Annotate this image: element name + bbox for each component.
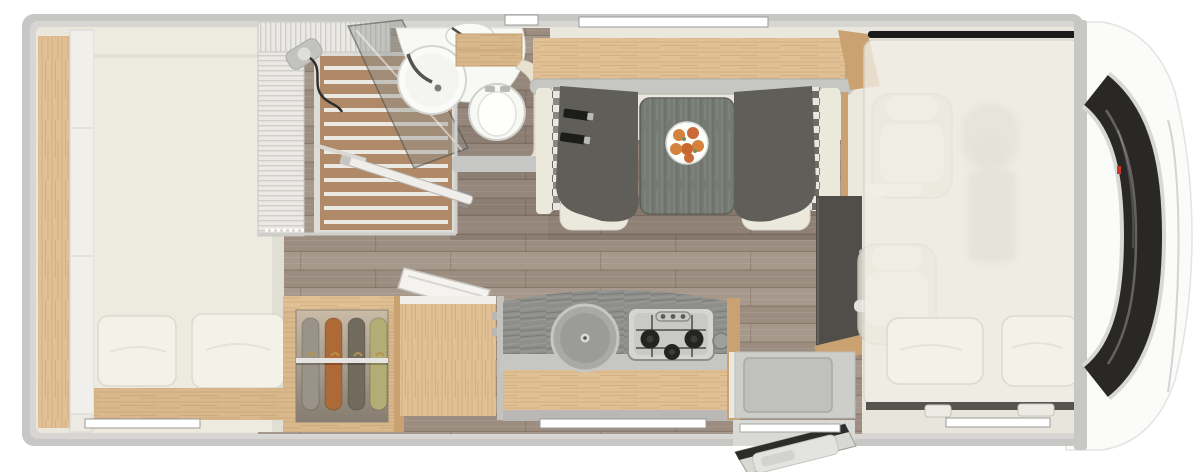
window-top-main bbox=[579, 17, 768, 27]
left-bench-backrest bbox=[556, 86, 639, 222]
floorplan-image bbox=[0, 0, 1200, 472]
hob-knob-3 bbox=[681, 314, 686, 319]
side-wood-shelf-grain bbox=[38, 36, 70, 428]
bathroom-half-wall bbox=[452, 156, 550, 172]
window-bottom-cab bbox=[946, 418, 1050, 427]
overcab-pillow-right bbox=[1002, 316, 1078, 386]
compartment-rim bbox=[400, 296, 496, 304]
entry-step bbox=[729, 352, 855, 418]
overhead-shelf-grain bbox=[533, 38, 863, 84]
left-side-cushion bbox=[536, 88, 552, 214]
wardrobe bbox=[283, 296, 404, 432]
red-antenna-marker bbox=[1117, 166, 1121, 174]
door-sill-bar bbox=[740, 424, 840, 432]
rear-bedroom bbox=[38, 28, 284, 432]
drawer-grain bbox=[503, 370, 738, 412]
tall-dark-cabinet bbox=[816, 196, 864, 346]
bed-rail-top bbox=[868, 31, 1078, 38]
right-side-cushion bbox=[820, 88, 840, 214]
burner-cap-2 bbox=[691, 336, 698, 343]
washbasin-drain bbox=[435, 85, 442, 92]
clothes-rail bbox=[296, 358, 388, 363]
counter-tap bbox=[713, 333, 729, 349]
sink-knob-dot bbox=[583, 336, 587, 340]
hob-knob-2 bbox=[671, 314, 676, 319]
window-bottom-mid bbox=[540, 419, 706, 428]
washbasin-bowl bbox=[405, 53, 459, 107]
belt-buckle-2 bbox=[584, 136, 591, 144]
window-top-small bbox=[505, 15, 538, 25]
floorplan-svg bbox=[0, 0, 1200, 472]
right-bench-backrest bbox=[733, 86, 816, 222]
burner-cap-1 bbox=[647, 336, 654, 343]
toilet-seat bbox=[478, 92, 516, 136]
gas-hob bbox=[628, 308, 714, 360]
overcab-pillow-left bbox=[887, 318, 983, 384]
burner-cap-3 bbox=[669, 349, 675, 355]
white-cabinet-column bbox=[70, 30, 94, 430]
cab bbox=[838, 28, 1080, 432]
belt-buckle-1 bbox=[587, 113, 594, 121]
hob-knob-1 bbox=[661, 314, 666, 319]
compartment-grain bbox=[400, 300, 496, 416]
toilet-hinge-left bbox=[485, 86, 495, 92]
rail-shadow bbox=[296, 363, 388, 365]
bed-foot-grain bbox=[94, 388, 284, 420]
bed-handle-right bbox=[1018, 404, 1054, 416]
bed-handle-left bbox=[925, 405, 951, 417]
step-tray bbox=[744, 358, 832, 412]
bed-pillow-right bbox=[192, 314, 284, 388]
cab-front-wall bbox=[1074, 20, 1087, 450]
toilet-hinge-right bbox=[500, 86, 510, 92]
window-bottom-left bbox=[85, 419, 200, 428]
dinette bbox=[530, 38, 866, 230]
